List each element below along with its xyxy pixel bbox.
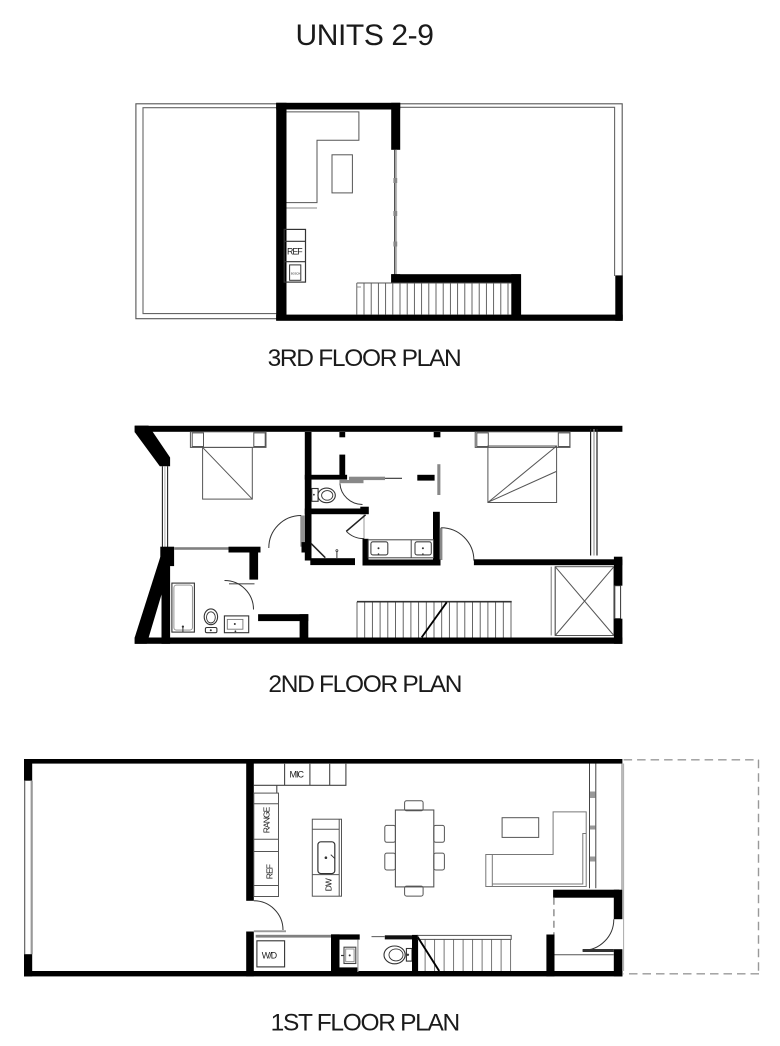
svg-text:1ST FLOOR PLAN: 1ST FLOOR PLAN [271,1010,459,1037]
svg-text:BOSCH: BOSCH [291,272,300,276]
svg-text:REF: REF [287,247,303,257]
svg-text:RANGE: RANGE [261,806,271,833]
svg-text:3RD FLOOR PLAN: 3RD FLOOR PLAN [268,345,461,372]
svg-text:UNITS 2-9: UNITS 2-9 [295,19,433,52]
svg-text:REF: REF [264,864,274,879]
svg-text:DW: DW [324,878,334,891]
svg-text:MIC: MIC [290,770,305,780]
svg-text:2ND FLOOR PLAN: 2ND FLOOR PLAN [268,671,461,698]
svg-text:W/D: W/D [262,950,277,960]
